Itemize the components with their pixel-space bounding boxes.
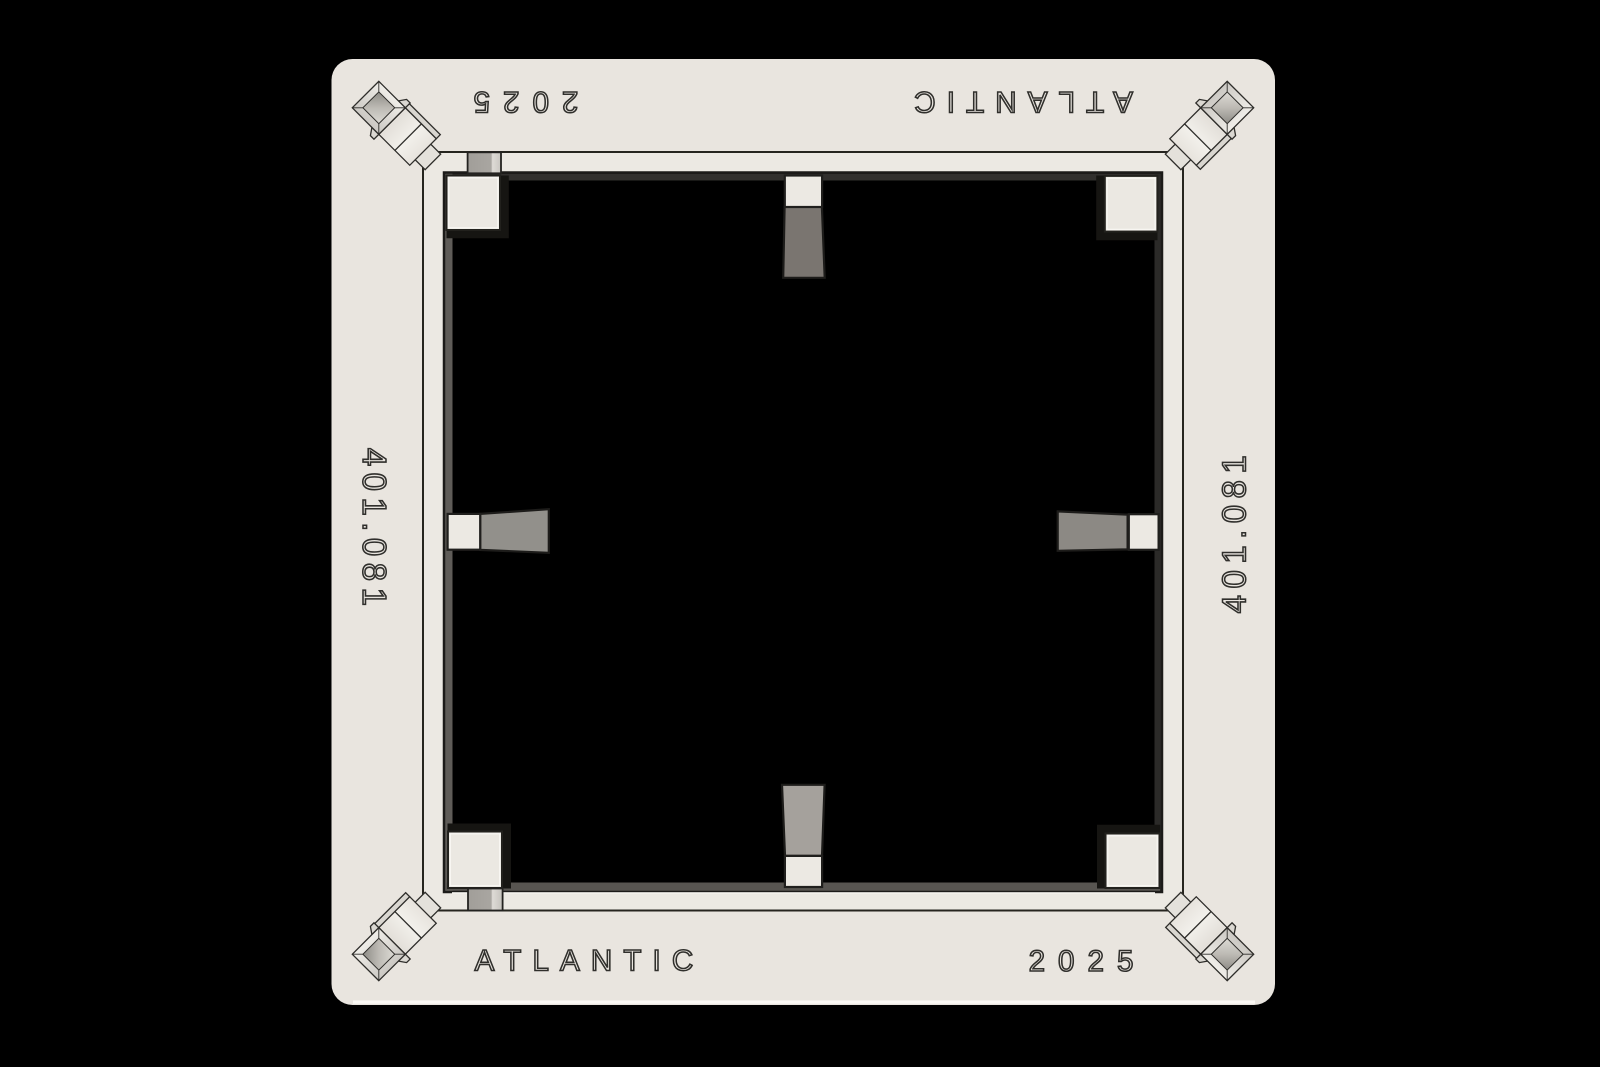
- svg-text:2025: 2025: [461, 85, 579, 118]
- svg-text:2025: 2025: [1029, 945, 1147, 978]
- svg-text:401.081: 401.081: [1215, 449, 1252, 614]
- svg-text:ATLANTIC: ATLANTIC: [903, 85, 1133, 118]
- svg-text:401.081: 401.081: [356, 448, 393, 613]
- svg-text:ATLANTIC: ATLANTIC: [475, 945, 705, 978]
